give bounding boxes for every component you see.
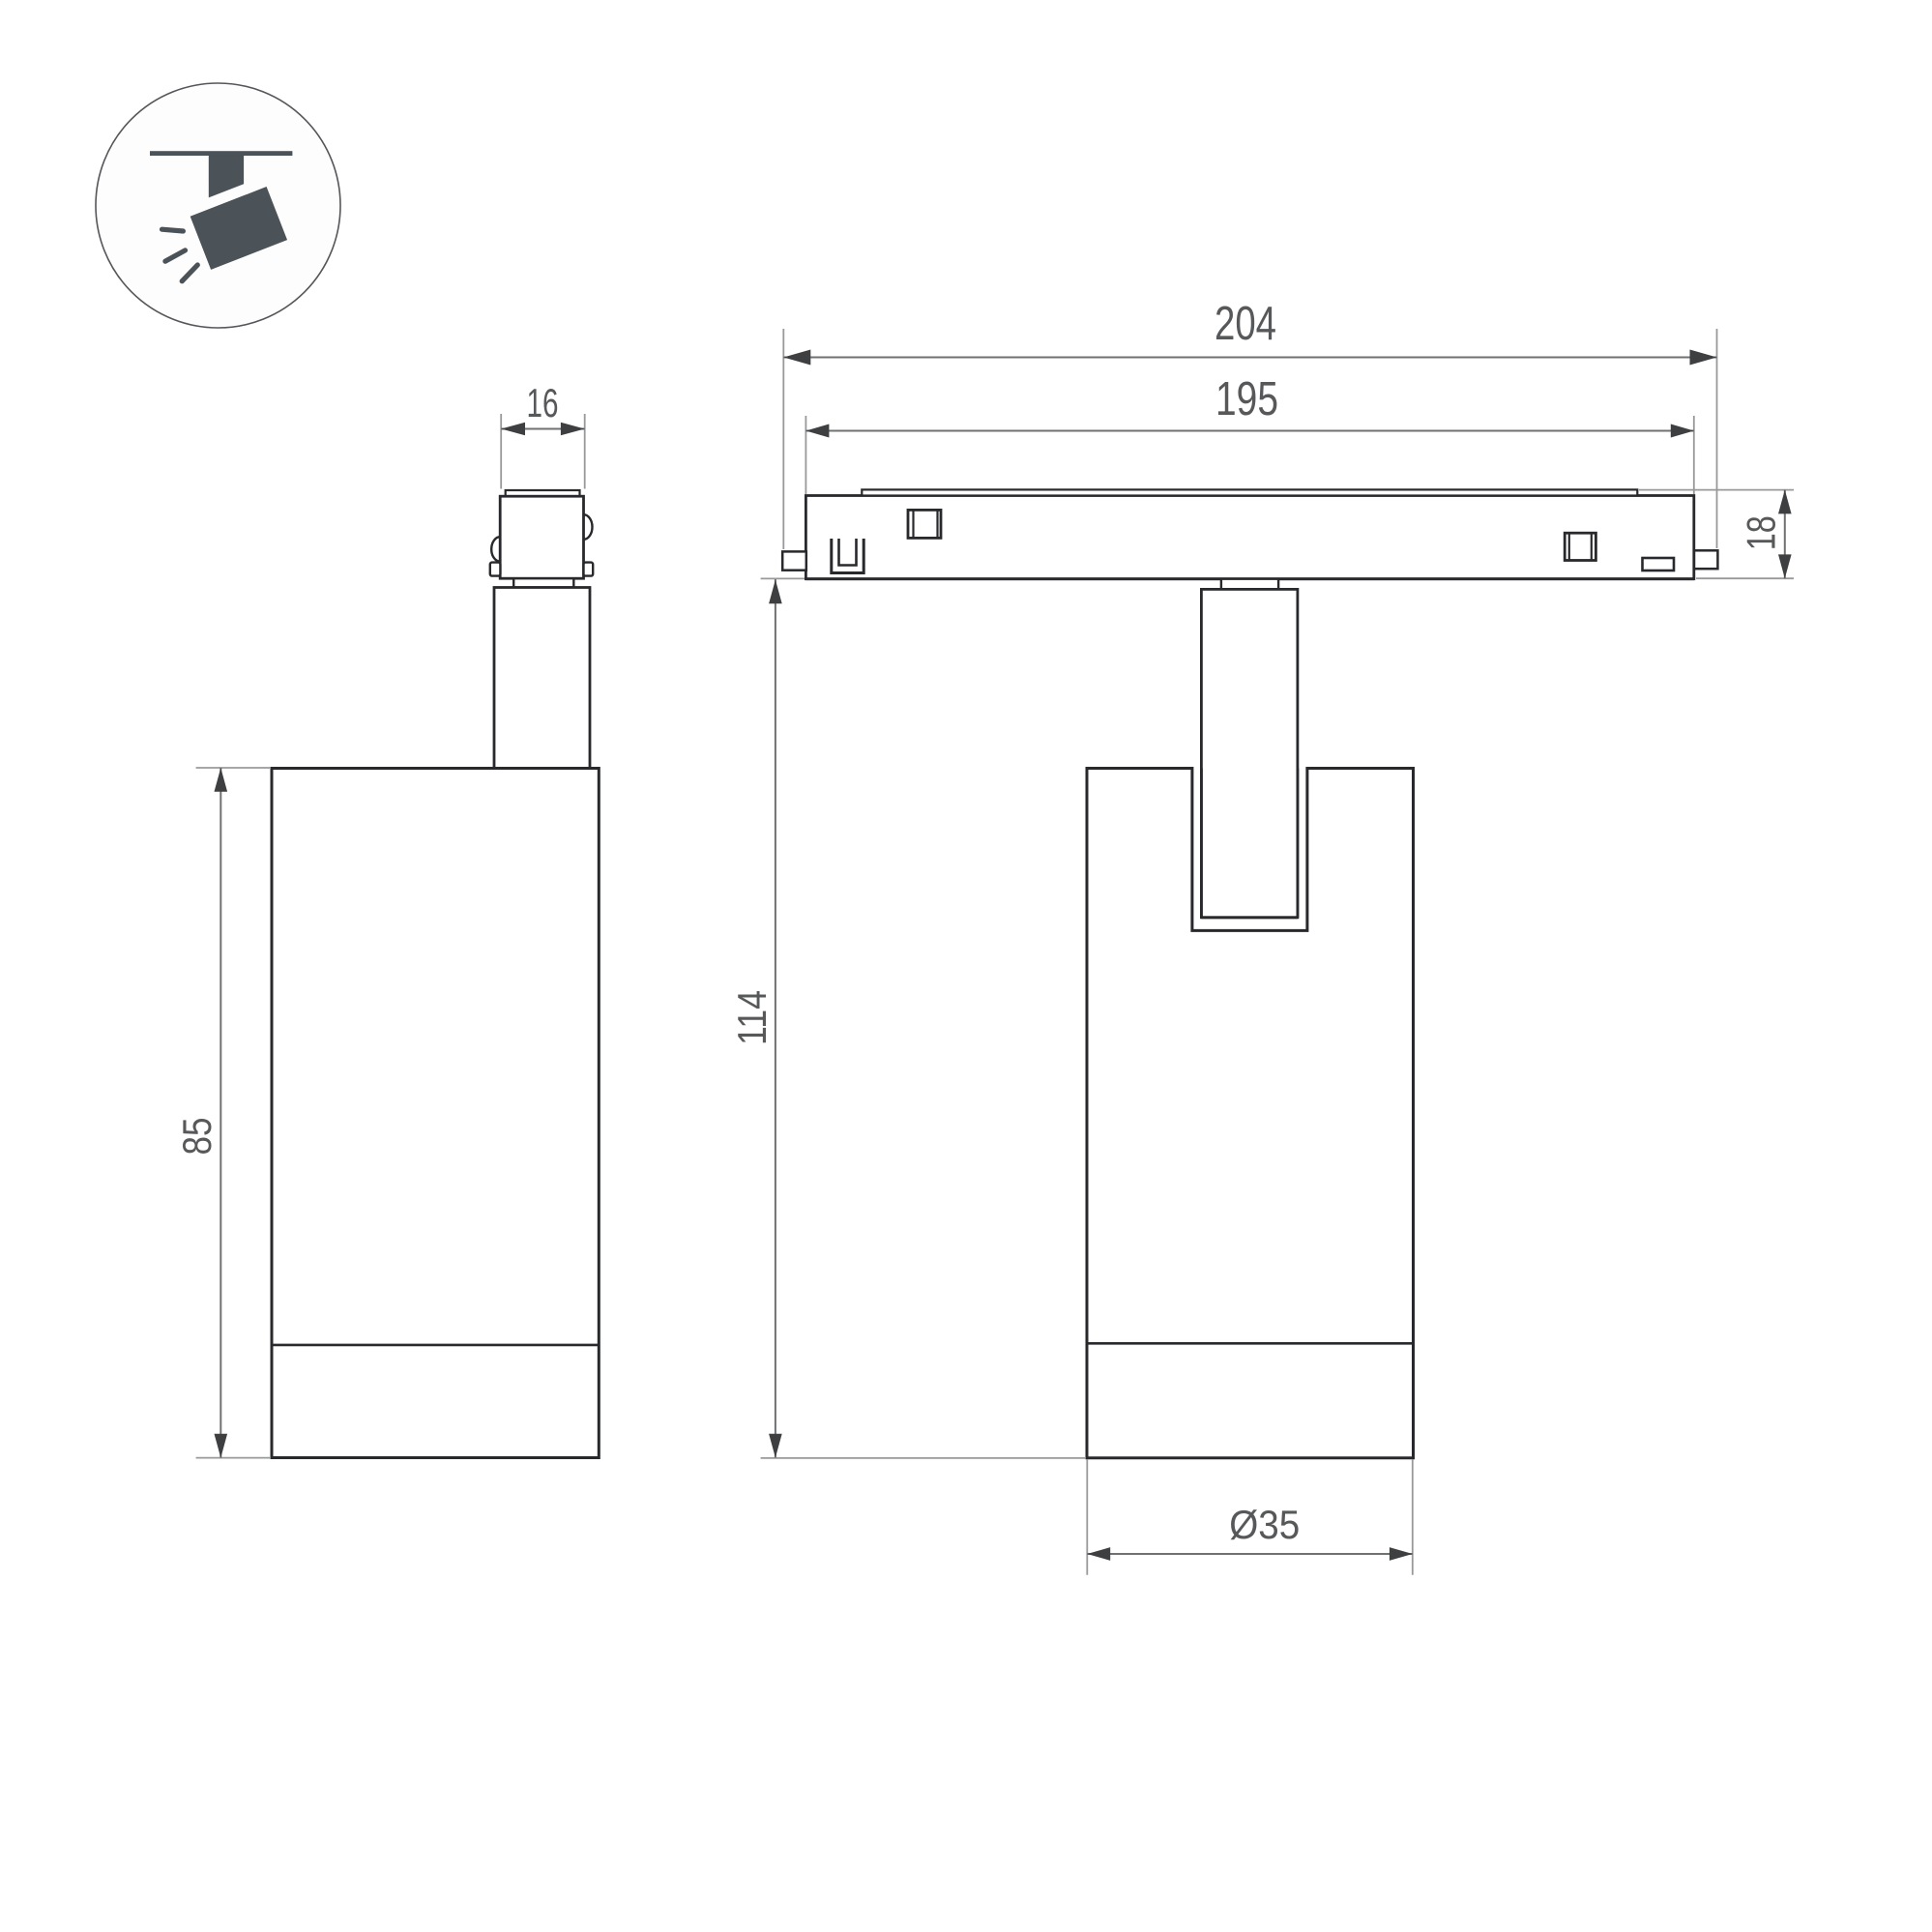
svg-text:204: 204 bbox=[1215, 298, 1276, 350]
svg-text:195: 195 bbox=[1215, 373, 1278, 425]
svg-text:85: 85 bbox=[174, 1118, 220, 1156]
svg-text:114: 114 bbox=[729, 990, 775, 1045]
svg-text:Ø35: Ø35 bbox=[1229, 1502, 1300, 1547]
svg-text:16: 16 bbox=[527, 380, 559, 425]
svg-text:18: 18 bbox=[1738, 515, 1783, 550]
